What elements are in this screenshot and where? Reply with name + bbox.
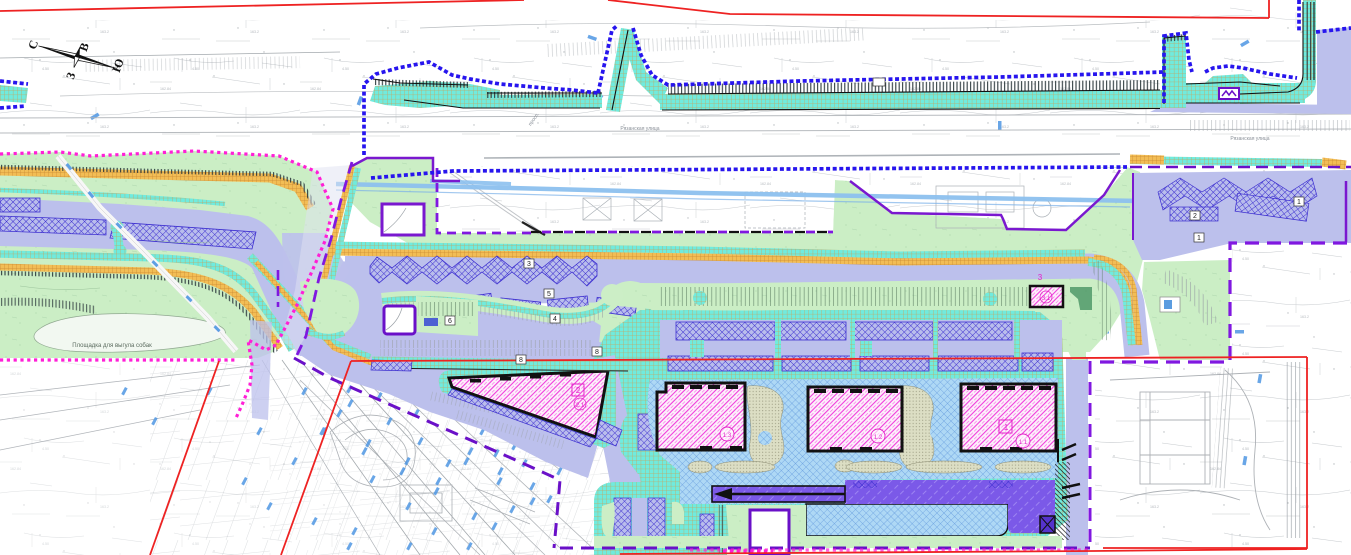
- svg-text:Площадка для выгула собак: Площадка для выгула собак: [72, 343, 152, 349]
- svg-text:8: 8: [519, 357, 523, 364]
- svg-text:2: 2: [1193, 213, 1197, 220]
- svg-text:2: 2: [576, 386, 581, 395]
- svg-text:8: 8: [595, 349, 599, 356]
- svg-text:Рязанская улица: Рязанская улица: [620, 126, 659, 132]
- svg-text:1.3: 1.3: [723, 433, 732, 439]
- svg-text:1: 1: [1297, 199, 1301, 206]
- svg-text:1.2: 1.2: [874, 435, 883, 441]
- svg-text:Рязанская улица: Рязанская улица: [1230, 136, 1269, 142]
- svg-text:1: 1: [1197, 235, 1201, 242]
- svg-text:4: 4: [553, 316, 557, 323]
- svg-text:1.1: 1.1: [1019, 440, 1028, 446]
- svg-text:3: 3: [527, 261, 531, 268]
- svg-text:3.1: 3.1: [1042, 296, 1051, 302]
- svg-text:1: 1: [1004, 423, 1009, 432]
- svg-text:5: 5: [547, 291, 551, 298]
- svg-text:2.1: 2.1: [576, 403, 585, 409]
- svg-text:3: 3: [1038, 273, 1043, 282]
- svg-text:6: 6: [448, 318, 452, 325]
